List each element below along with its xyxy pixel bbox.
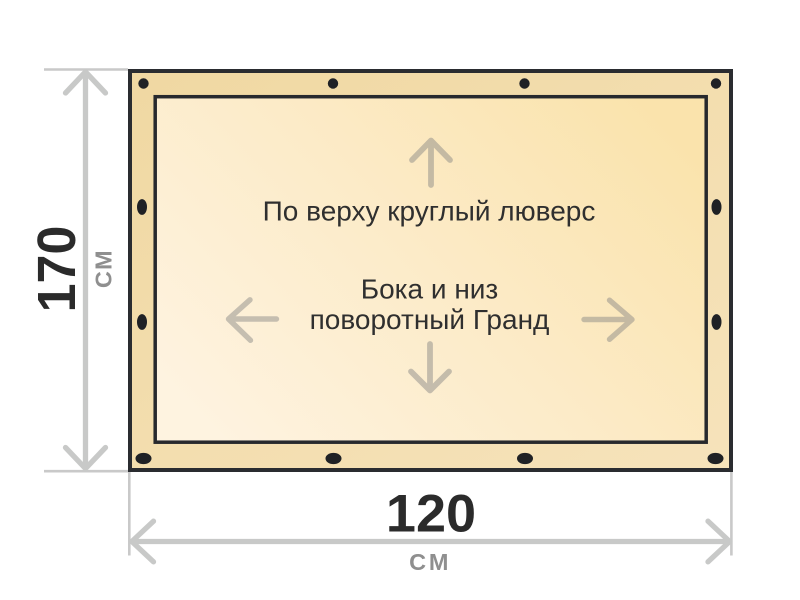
svg-text:170: 170 — [27, 226, 87, 313]
svg-text:СМ: СМ — [409, 549, 451, 575]
svg-text:Бока и низ: Бока и низ — [361, 274, 499, 305]
svg-text:По верху круглый люверс: По верху круглый люверс — [263, 196, 596, 227]
svg-text:поворотный Гранд: поворотный Гранд — [310, 304, 550, 335]
svg-text:120: 120 — [386, 485, 476, 543]
svg-text:СМ: СМ — [91, 249, 117, 288]
